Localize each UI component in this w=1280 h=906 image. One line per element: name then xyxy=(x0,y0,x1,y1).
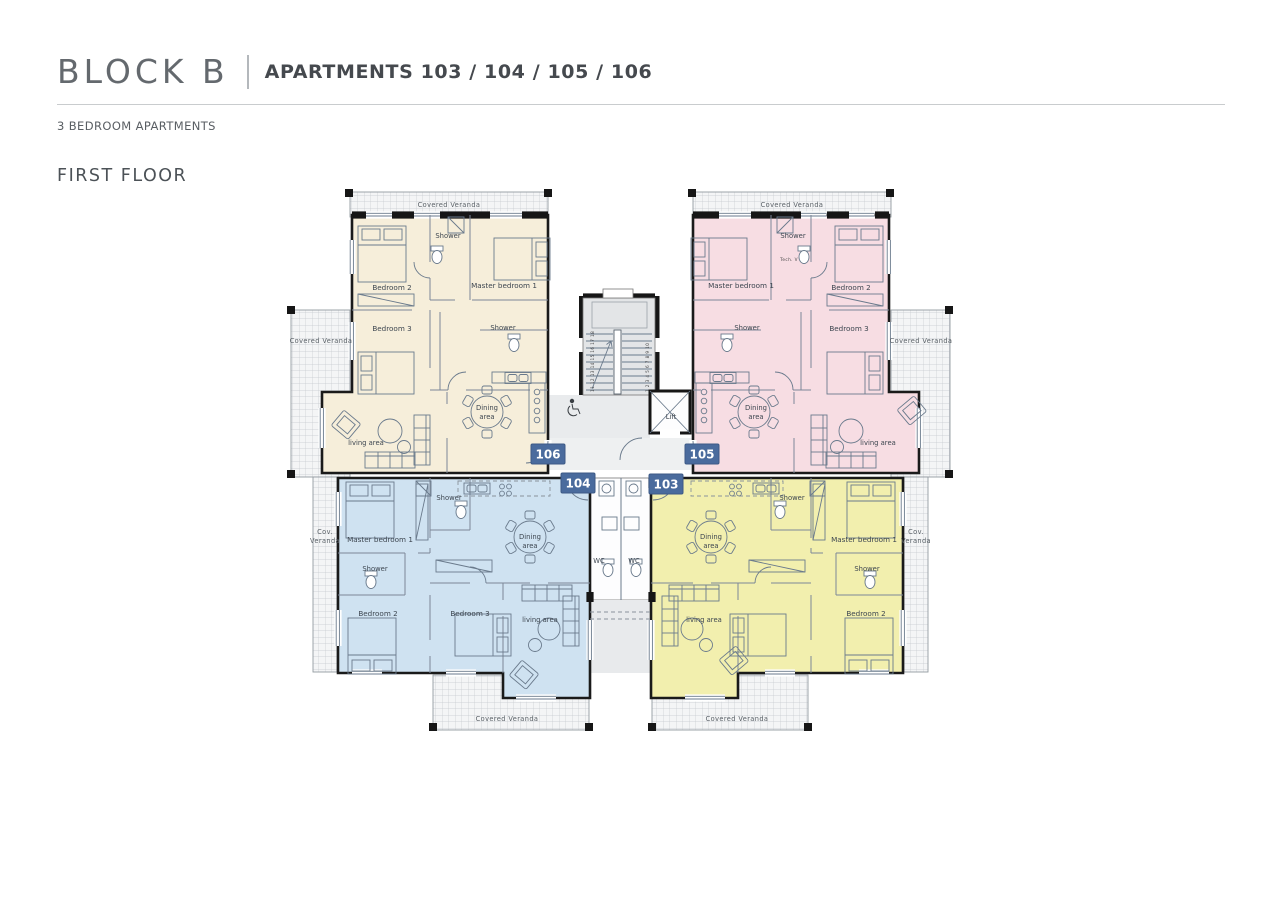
toilet-icon xyxy=(365,571,377,589)
room-label-living: living area xyxy=(860,439,896,447)
veranda-label: Veranda xyxy=(310,537,340,545)
badge-105-number: 105 xyxy=(689,448,714,462)
room-label-bedroom3: Bedroom 3 xyxy=(829,324,868,333)
room-label-master: Master bedroom 1 xyxy=(471,281,537,290)
veranda-label: Covered Veranda xyxy=(290,337,353,345)
room-label-shower: Shower xyxy=(362,565,388,573)
stair-top-landing xyxy=(603,289,633,298)
room-label-master: Master bedroom 1 xyxy=(831,535,897,544)
veranda-left-lower xyxy=(313,477,337,672)
room-label-shower: Shower xyxy=(780,232,806,240)
room-label-living: living area xyxy=(686,616,722,624)
room-label-living: living area xyxy=(522,616,558,624)
room-label-dining: Dining xyxy=(476,404,498,412)
room-label-dining: Dining xyxy=(519,533,541,541)
veranda-label: Covered Veranda xyxy=(761,201,824,209)
wc-label-right: WC xyxy=(628,557,640,565)
badge-106-number: 106 xyxy=(535,448,560,462)
room-label-dining: area xyxy=(522,542,537,550)
room-label-bedroom2: Bedroom 2 xyxy=(846,609,885,618)
toilet-icon xyxy=(508,334,520,352)
veranda-label: Cov. xyxy=(908,528,924,536)
room-label-bedroom3: Bedroom 3 xyxy=(372,324,411,333)
room-label-shower: Shower xyxy=(779,494,805,502)
floor-plan-page: BLOCK B APARTMENTS 103 / 104 / 105 / 106… xyxy=(0,0,1280,906)
toilet-icon xyxy=(455,501,467,519)
toilet-icon xyxy=(721,334,733,352)
badge-103-number: 103 xyxy=(653,478,678,492)
veranda-right-lower xyxy=(904,477,928,672)
rear-corridor xyxy=(590,600,652,673)
room-label-bedroom2: Bedroom 2 xyxy=(831,283,870,292)
room-label-shower: Shower xyxy=(734,324,760,332)
room-label-master: Master bedroom 1 xyxy=(708,281,774,290)
room-label-shower: Shower xyxy=(490,324,516,332)
toilet-icon xyxy=(864,571,876,589)
toilet-icon xyxy=(798,246,810,264)
stair-lobby xyxy=(548,395,650,438)
stair-step-numbers-right: 1 2 3 4 5 6 7 8 9 10 xyxy=(645,343,650,392)
room-label-shower: Shower xyxy=(854,565,880,573)
stair-step-numbers-left: 11 12 13 14 15 16 17 18 xyxy=(590,331,595,392)
room-label-bedroom2: Bedroom 2 xyxy=(358,609,397,618)
room-label-living: living area xyxy=(348,439,384,447)
room-label-bedroom3: Bedroom 3 xyxy=(450,609,489,618)
toilet-icon xyxy=(431,246,443,264)
wc-label-left: WC xyxy=(593,557,605,565)
lift-shaft: Lift xyxy=(650,391,690,435)
room-label-bedroom2: Bedroom 2 xyxy=(372,283,411,292)
staircase: 1 2 3 4 5 6 7 8 9 10 11 12 13 14 15 16 1… xyxy=(583,289,655,395)
floor-plan-drawing: 1 2 3 4 5 6 7 8 9 10 11 12 13 14 15 16 1… xyxy=(0,0,1280,906)
room-label-dining: Dining xyxy=(745,404,767,412)
room-label-tech: Tech. V xyxy=(779,257,798,262)
room-label-dining: area xyxy=(748,413,763,421)
veranda-label: Cov. xyxy=(317,528,333,536)
lift-door-opening xyxy=(660,430,680,435)
veranda-label: Covered Veranda xyxy=(890,337,953,345)
room-label-dining: area xyxy=(703,542,718,550)
room-label-shower: Shower xyxy=(435,232,461,240)
toilet-icon xyxy=(774,501,786,519)
stair-rail xyxy=(614,330,621,394)
veranda-label: Covered Veranda xyxy=(418,201,481,209)
room-label-dining: Dining xyxy=(700,533,722,541)
veranda-label: Covered Veranda xyxy=(476,715,539,723)
lift-label: Lift xyxy=(666,413,677,421)
veranda-label: Veranda xyxy=(901,537,931,545)
room-label-shower: Shower xyxy=(436,494,462,502)
room-label-master: Master bedroom 1 xyxy=(347,535,413,544)
veranda-label: Covered Veranda xyxy=(706,715,769,723)
badge-104-number: 104 xyxy=(565,477,590,491)
room-label-dining: area xyxy=(479,413,494,421)
